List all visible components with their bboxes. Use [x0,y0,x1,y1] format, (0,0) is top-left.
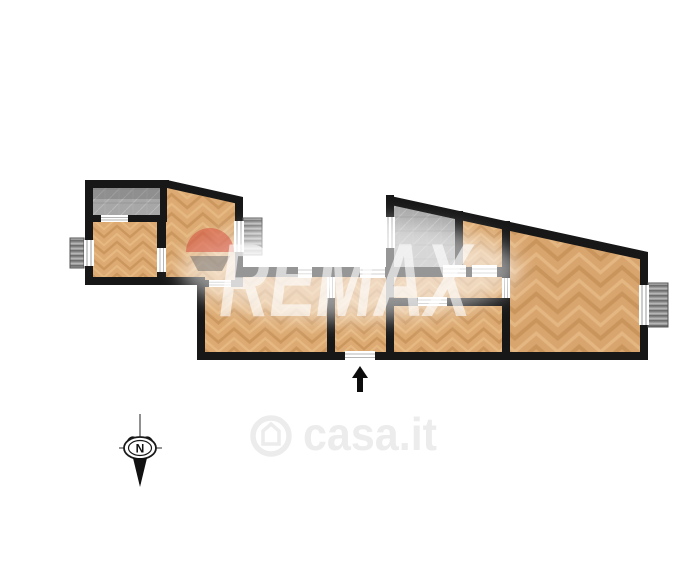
bedroom-left-floor [88,217,163,281]
floor-plan-image: REMAX N casa.it [0,0,681,588]
door-entrance [345,351,375,360]
door-storage [101,215,128,222]
entrance-arrow [352,366,368,392]
door-left-rooms [157,248,166,272]
compass-north-label: N [136,442,145,456]
compass-north-indicator: N [119,414,162,487]
casa-watermark-text: casa.it [303,408,437,460]
casa-house-icon [253,418,289,454]
compass-south-arrow [133,458,147,487]
remax-watermark: REMAX [180,220,520,339]
remax-watermark-text: REMAX [219,223,475,339]
window-right [639,283,668,327]
casa-watermark: casa.it [253,408,437,460]
window-left [70,238,94,268]
